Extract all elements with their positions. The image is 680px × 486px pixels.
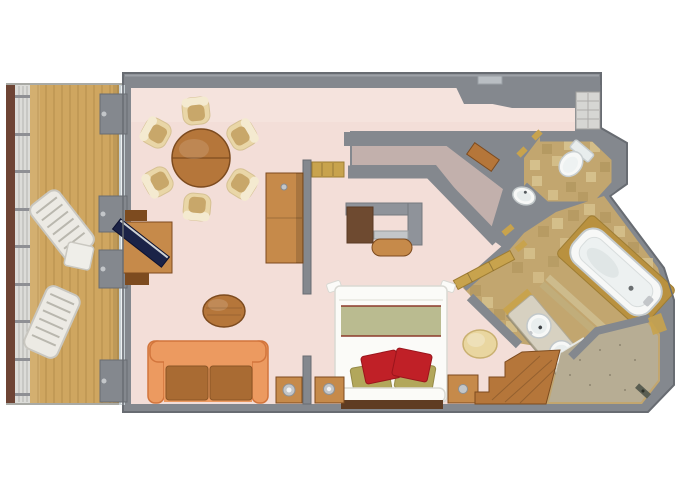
closet-door-threshold [312, 162, 344, 177]
nightstand-left [315, 377, 344, 403]
sofa-back [150, 341, 266, 362]
bed-headboard [337, 388, 445, 402]
desk-stool [372, 239, 412, 256]
divider-wall-lower [303, 356, 311, 404]
veranda-railing-wood [6, 85, 15, 403]
cabinet-knob [281, 184, 287, 190]
bed [326, 280, 456, 409]
sofa [148, 341, 268, 403]
desk-tray [374, 231, 408, 239]
entry-door-slab [478, 76, 502, 84]
deck-highlight [30, 85, 40, 403]
corner-lamp-table [276, 377, 302, 403]
coffee-table [203, 295, 245, 327]
veranda-side-table [64, 242, 94, 271]
ottoman [463, 330, 497, 358]
bed-bench [341, 400, 443, 409]
sofa-cushion [210, 366, 252, 400]
suite-floor-plan [0, 0, 680, 486]
floor-plan-canvas [0, 0, 680, 486]
dining-chair [181, 96, 211, 126]
dresser-right [448, 375, 478, 403]
dining-chair [182, 192, 211, 221]
bed-runner [341, 306, 441, 336]
dresser-knob [459, 385, 468, 394]
divider-wall-upper [303, 160, 311, 294]
tall-cabinet [266, 173, 303, 263]
sofa-cushion [166, 366, 208, 400]
